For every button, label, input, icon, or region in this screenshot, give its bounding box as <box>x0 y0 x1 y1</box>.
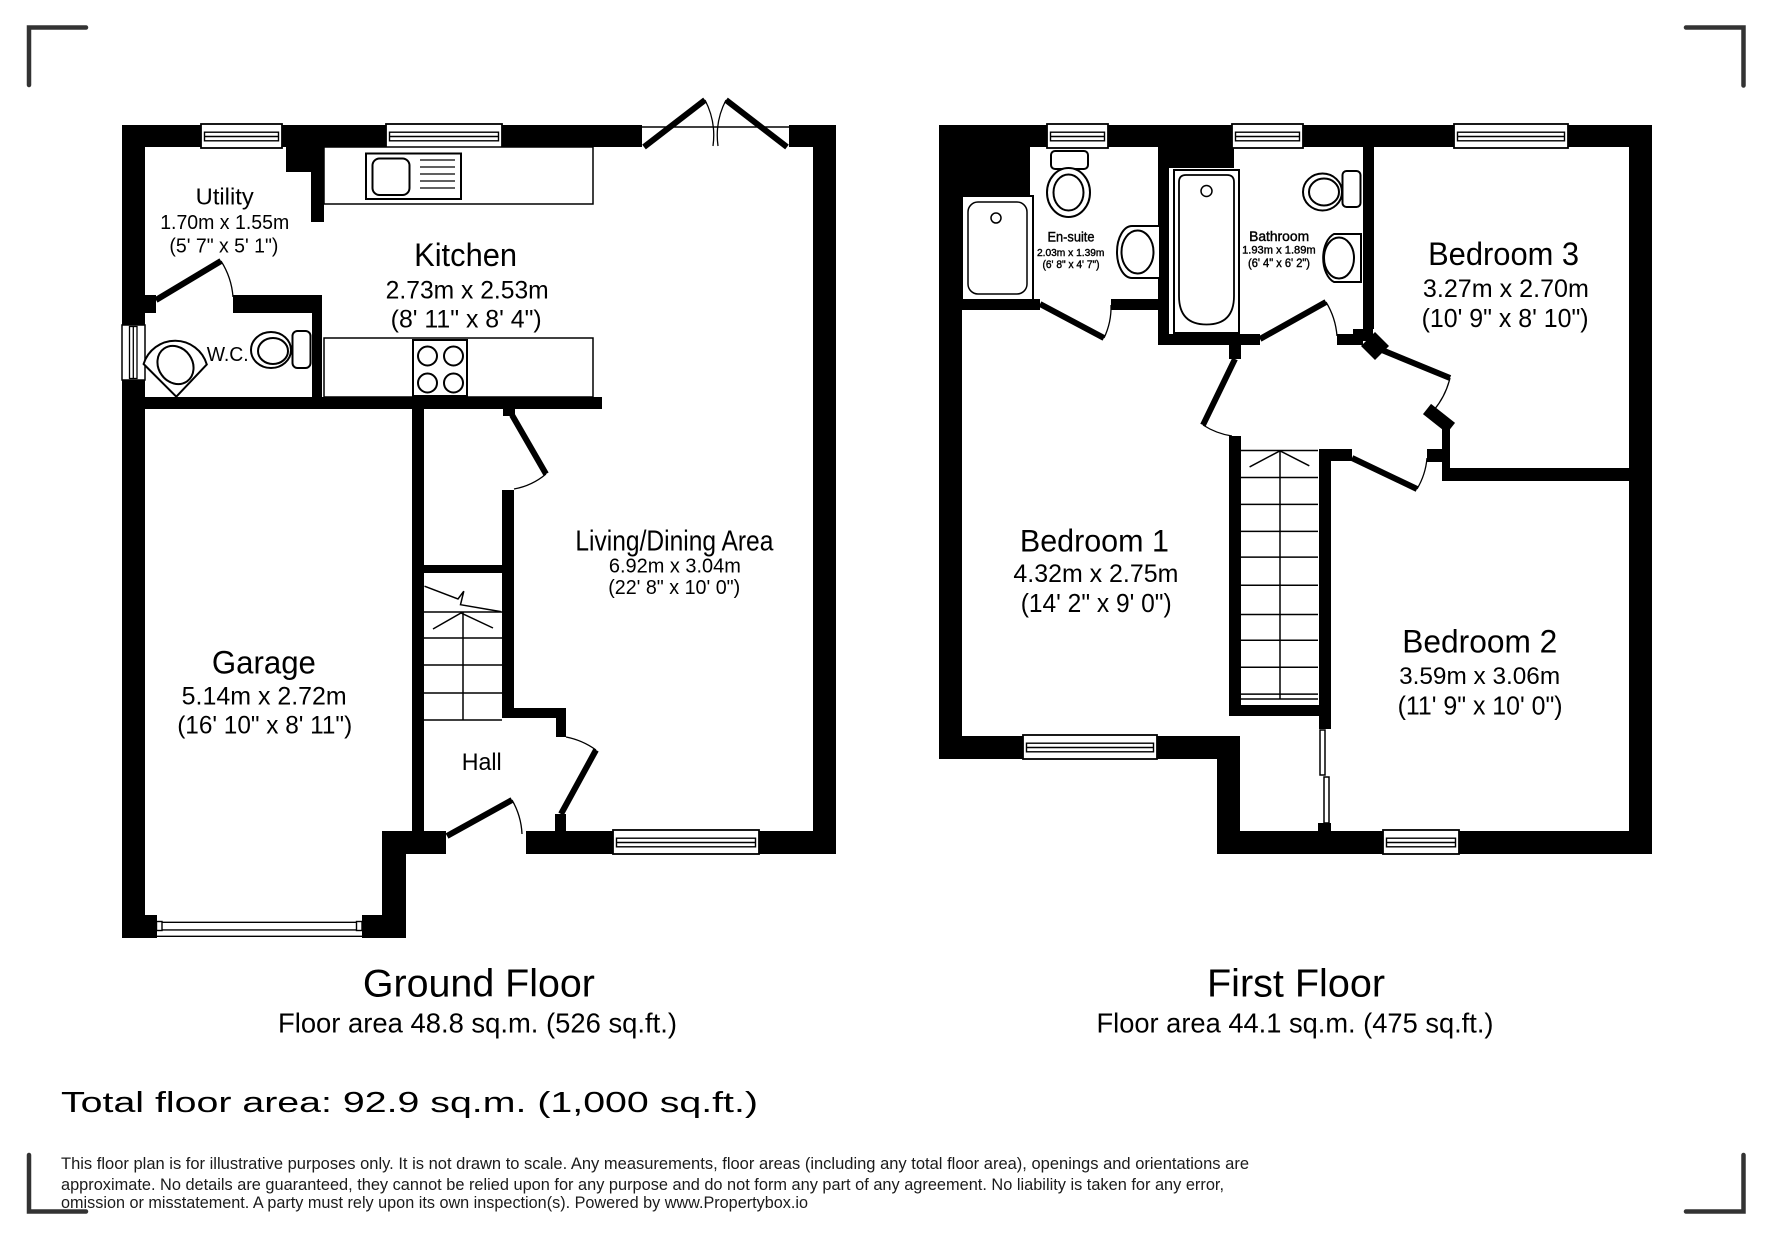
svg-text:(6' 4" x 6' 2"): (6' 4" x 6' 2") <box>1248 257 1310 270</box>
svg-text:approximate. No details are gu: approximate. No details are guaranteed, … <box>61 1175 1224 1194</box>
svg-text:This floor plan is for illustr: This floor plan is for illustrative purp… <box>61 1154 1249 1173</box>
svg-text:3.59m x 3.06m: 3.59m x 3.06m <box>1399 663 1560 690</box>
svg-text:First Floor: First Floor <box>1207 963 1385 1006</box>
svg-text:2.73m x 2.53m: 2.73m x 2.53m <box>386 278 549 305</box>
svg-text:(10' 9" x 8' 10"): (10' 9" x 8' 10") <box>1422 305 1589 333</box>
svg-text:Bedroom 1: Bedroom 1 <box>1020 523 1169 559</box>
svg-text:(8' 11" x 8' 4"): (8' 11" x 8' 4") <box>391 307 542 334</box>
svg-text:Living/Dining Area: Living/Dining Area <box>575 525 774 557</box>
svg-text:Bedroom 3: Bedroom 3 <box>1428 236 1579 272</box>
svg-text:3.27m x 2.70m: 3.27m x 2.70m <box>1423 275 1589 303</box>
svg-text:(16' 10" x 8' 11"): (16' 10" x 8' 11") <box>177 711 352 739</box>
svg-text:En-suite: En-suite <box>1048 230 1095 245</box>
svg-text:Floor area 48.8 sq.m. (526 sq.: Floor area 48.8 sq.m. (526 sq.ft.) <box>278 1008 677 1039</box>
svg-text:6.92m x 3.04m: 6.92m x 3.04m <box>609 555 741 577</box>
svg-text:Floor area 44.1 sq.m. (475 sq.: Floor area 44.1 sq.m. (475 sq.ft.) <box>1097 1008 1494 1039</box>
svg-text:(14' 2" x 9' 0"): (14' 2" x 9' 0") <box>1021 590 1172 618</box>
svg-text:1.70m x 1.55m: 1.70m x 1.55m <box>160 211 289 234</box>
svg-text:Kitchen: Kitchen <box>414 237 517 273</box>
svg-text:W.C.: W.C. <box>207 344 249 366</box>
svg-text:(6' 8" x 4' 7"): (6' 8" x 4' 7") <box>1043 259 1100 271</box>
svg-text:(22' 8" x 10' 0"): (22' 8" x 10' 0") <box>608 577 740 599</box>
svg-text:Bathroom: Bathroom <box>1249 229 1309 244</box>
svg-text:omission or misstatement. A pa: omission or misstatement. A party must r… <box>61 1193 808 1212</box>
svg-text:2.03m x 1.39m: 2.03m x 1.39m <box>1037 248 1105 259</box>
svg-text:Garage: Garage <box>212 644 316 680</box>
svg-text:Total floor area: 92.9 sq.m. (: Total floor area: 92.9 sq.m. (1,000 sq.f… <box>61 1087 758 1119</box>
svg-text:(11' 9" x 10' 0"): (11' 9" x 10' 0") <box>1398 693 1563 721</box>
svg-text:Utility: Utility <box>196 184 254 210</box>
svg-text:4.32m x 2.75m: 4.32m x 2.75m <box>1013 560 1178 588</box>
svg-text:Ground Floor: Ground Floor <box>363 963 595 1006</box>
svg-text:Bedroom 2: Bedroom 2 <box>1402 624 1557 660</box>
svg-text:1.93m x 1.89m: 1.93m x 1.89m <box>1242 245 1316 257</box>
svg-text:(5' 7" x 5' 1"): (5' 7" x 5' 1") <box>169 234 278 257</box>
svg-text:5.14m x 2.72m: 5.14m x 2.72m <box>182 682 347 710</box>
svg-text:Hall: Hall <box>462 749 502 776</box>
